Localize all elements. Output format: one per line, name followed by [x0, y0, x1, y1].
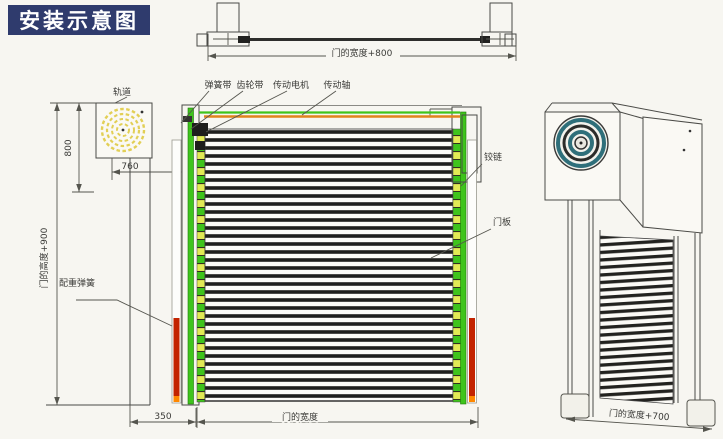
dim-top-width: 门的宽度+800 — [208, 44, 516, 61]
screw-dot — [683, 149, 686, 152]
dim-800: 800 — [64, 103, 94, 192]
dim-350: 350 — [130, 405, 196, 427]
right-bracket-pad — [505, 34, 516, 46]
dim-label-top-width: 门的宽度+800 — [332, 47, 393, 59]
left-shaft-coupling — [238, 36, 250, 43]
box-mark-dot — [141, 111, 144, 114]
door-panel-label: 门板 — [493, 216, 511, 228]
gear-block — [195, 141, 205, 150]
right-spring-tip — [469, 396, 475, 402]
rolled-curtain-coil — [554, 116, 608, 170]
left-foot — [561, 394, 589, 418]
track-label: 轨道 — [113, 86, 131, 98]
left-rail-green-strip — [188, 108, 194, 404]
top-view: 门的宽度+800 — [197, 3, 516, 61]
right-counterweight-spring — [469, 318, 475, 398]
left-counterweight-spring — [174, 318, 180, 398]
dim-label-perspective-width: 门的宽度+700 — [608, 407, 670, 423]
left-bracket-upright — [217, 3, 239, 32]
left-bracket-pad — [197, 34, 208, 46]
gear-belt-label: 齿轮带 — [236, 79, 263, 91]
spring-belt-label: 弹簧带 — [204, 79, 231, 91]
perspective-view: 门的宽度+700 — [545, 103, 715, 432]
right-rail-green-strip — [461, 112, 467, 404]
right-foot — [687, 400, 715, 426]
hood-end-cap — [643, 117, 702, 233]
drive-motor-label: 传动电机 — [273, 79, 309, 91]
installation-diagram: 安装示意图 — [0, 0, 723, 439]
hood-top-edge — [612, 103, 702, 120]
diagram-drawing: 门的宽度+800 轨道 800 — [0, 0, 723, 439]
coil-center-dot — [122, 129, 125, 132]
dim-door-width: 门的宽度 — [197, 407, 478, 428]
counterweight-spring-leader — [76, 300, 172, 326]
left-spring-tip — [174, 396, 180, 402]
drive-motor-block — [192, 123, 208, 136]
drive-shaft-label: 传动轴 — [323, 79, 350, 91]
screw-dot — [689, 130, 692, 133]
door-curtain-slats — [205, 129, 453, 401]
dim-label-door-width: 门的宽度 — [282, 411, 318, 423]
dim-label-350: 350 — [154, 412, 171, 422]
left-hinge-blocks — [197, 129, 205, 402]
perspective-curtain — [600, 236, 673, 404]
dim-label-800: 800 — [64, 139, 74, 156]
counterweight-spring-label: 配重弹簧 — [59, 277, 95, 289]
dim-label-door-height: 门的高度+900 — [38, 227, 50, 288]
right-hinge-blocks — [453, 129, 461, 402]
right-bracket-upright — [490, 3, 512, 32]
hinge-label: 铰链 — [484, 151, 502, 163]
